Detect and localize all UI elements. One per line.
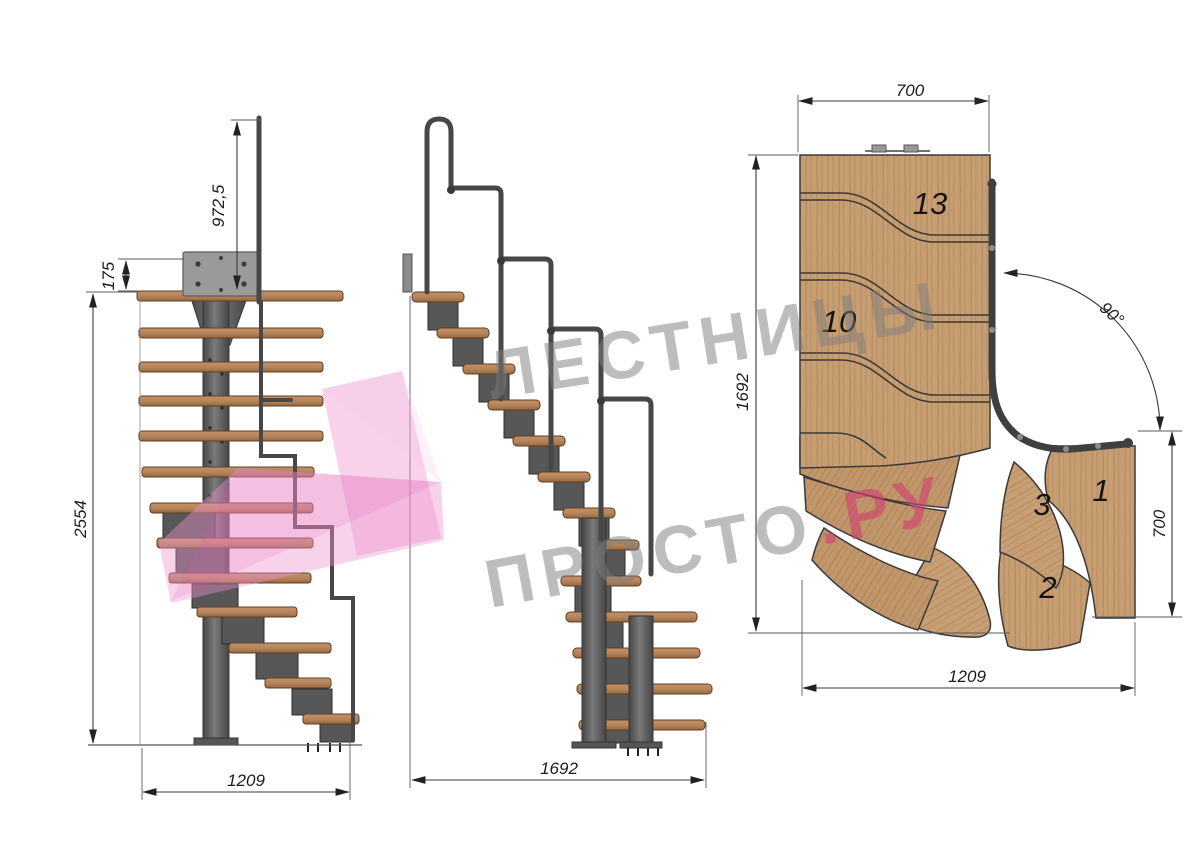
dim-plan-right-depth-label: 700 bbox=[1150, 509, 1169, 538]
plan-step-2-label: 2 bbox=[1038, 570, 1056, 605]
dim-plate-offset-label: 175 bbox=[99, 261, 118, 290]
staircase-technical-drawing: 972,5 175 2554 1209 bbox=[0, 0, 1200, 849]
dim-plan-depth-label: 1692 bbox=[733, 373, 752, 411]
plan-step-1-label: 1 bbox=[1092, 473, 1109, 508]
plan-step-13-label: 13 bbox=[913, 186, 947, 221]
drawing-canvas: 972,5 175 2554 1209 bbox=[0, 0, 1200, 849]
plan-landing-bracket bbox=[865, 145, 930, 152]
dim-side-length-label: 1692 bbox=[540, 759, 578, 778]
wall-bracket-side bbox=[403, 254, 412, 292]
column-foot bbox=[194, 738, 238, 745]
dim-plan-top-width-label: 700 bbox=[896, 81, 925, 100]
side-elevation-view: 1692 bbox=[403, 119, 712, 788]
anchor-bolts bbox=[308, 743, 340, 752]
dim-front-width-label: 1209 bbox=[227, 771, 265, 790]
dim-rail-height-label: 972,5 bbox=[209, 184, 228, 227]
plan-step-3-label: 3 bbox=[1033, 487, 1050, 522]
dim-total-height-label: 2554 bbox=[71, 500, 90, 539]
plan-view: 13 10 3 1 2 700 1692 1209 700 90° bbox=[733, 81, 1182, 696]
dim-turn-angle-label: 90° bbox=[1096, 298, 1128, 329]
wall-mount-plate bbox=[183, 252, 259, 296]
front-elevation-view: 972,5 175 2554 1209 bbox=[71, 118, 362, 800]
dim-plan-bottom-width-label: 1209 bbox=[948, 667, 986, 686]
